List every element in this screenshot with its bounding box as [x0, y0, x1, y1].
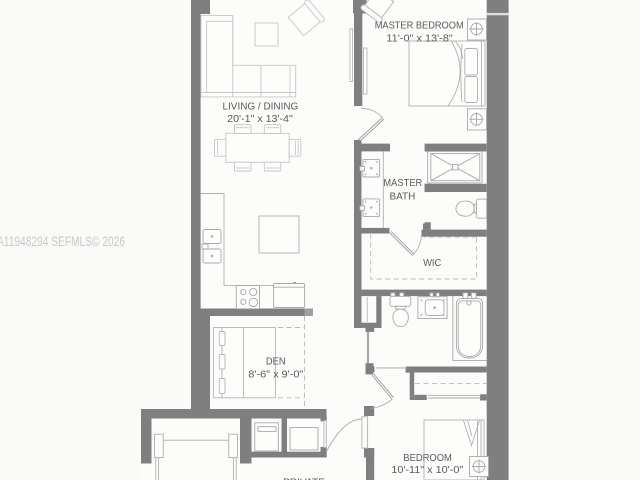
svg-text:LIVING / DINING: LIVING / DINING — [223, 100, 299, 112]
svg-text:BATH: BATH — [390, 190, 416, 202]
svg-text:A11948294 SEFMLS© 2026: A11948294 SEFMLS© 2026 — [0, 234, 125, 249]
svg-text:MASTER: MASTER — [383, 177, 422, 189]
svg-text:PRIVATE: PRIVATE — [283, 477, 325, 480]
svg-text:10'-11" x 10'-0": 10'-11" x 10'-0" — [391, 464, 463, 476]
svg-text:20'-1" x 13'-4": 20'-1" x 13'-4" — [227, 113, 293, 125]
svg-text:WIC: WIC — [423, 257, 442, 269]
svg-text:BEDROOM: BEDROOM — [403, 452, 452, 464]
svg-text:11'-0" x 13'-8": 11'-0" x 13'-8" — [386, 33, 453, 45]
svg-text:8'-6" x 9'-0": 8'-6" x 9'-0" — [248, 368, 303, 380]
svg-text:DEN: DEN — [266, 356, 286, 368]
svg-text:MASTER BEDROOM: MASTER BEDROOM — [375, 19, 464, 31]
